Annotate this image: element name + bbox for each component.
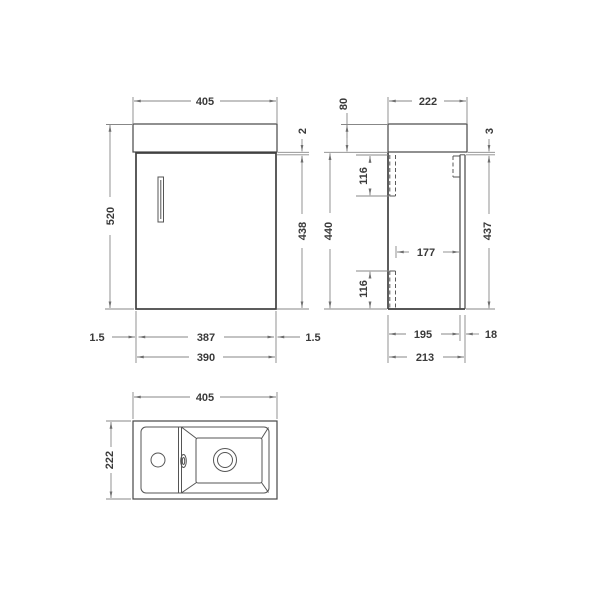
dim-side-top-gap: 3 [484,128,496,152]
dim-front-overall-height: 520 [105,125,117,308]
dim-side-total-depth-label: 213 [416,352,434,364]
dim-front-door-width-label: 387 [197,332,215,344]
dim-front-door-row: 1.5 387 1.5 [89,332,320,344]
dim-side-cabinet-depth-label: 195 [414,329,432,341]
plan-drain-outer [214,449,237,472]
dim-side-door-height: 437 [482,156,494,308]
side-wall-bracket-top [390,155,396,196]
dim-side-bracket-top-label: 116 [358,167,370,185]
plan-bowl-chamfer-tl [182,428,197,439]
plan-overflow-inner [182,458,184,465]
plan-bowl-chamfer-br [262,483,269,493]
technical-drawing-page: 405 520 2 438 1.5 387 1.5 [0,0,600,600]
plan-bowl-chamfer-tr [262,428,269,439]
plan-bowl-chamfer-bl [182,483,197,493]
plan-worktop-outline [133,421,277,499]
dim-front-worktop-overhang: 2 [297,128,309,152]
dim-front-worktop-overhang-label: 2 [297,128,309,134]
dim-front-overall-height-label: 520 [105,207,117,225]
side-basin-outline [388,124,467,152]
dim-front-overall-width: 405 [134,96,276,108]
dim-front-door-gap-right-label: 1.5 [305,332,320,344]
side-extension-lines [324,97,495,363]
dim-side-bracket-bottom: 116 [358,272,370,308]
side-view: 222 80 3 116 440 177 [323,96,497,364]
dim-side-basin-height-label: 80 [338,98,350,110]
plan-basin-bowl [182,428,269,493]
dim-front-cabinet-width: 390 [137,352,275,364]
dim-side-cabinet-height: 440 [323,153,335,308]
dim-front-door-gap-left-label: 1.5 [89,332,104,344]
dim-side-bracket-top: 116 [358,156,370,195]
plan-drain-inner [218,453,233,468]
front-basin-outline [133,124,277,152]
dim-side-internal-depth-label: 177 [417,247,435,259]
dim-side-top-gap-label: 3 [484,128,496,134]
dim-side-depth-row: 195 18 [389,329,497,341]
front-cabinet-door [136,153,276,309]
dim-side-door-height-label: 437 [482,222,494,240]
plan-bowl-inner-edge [196,438,262,483]
vanity-unit-technical-drawing: 405 520 2 438 1.5 387 1.5 [0,0,600,600]
dim-front-door-height-label: 438 [297,222,309,240]
dim-side-door-thickness-label: 18 [485,329,497,341]
dim-front-overall-width-label: 405 [196,96,214,108]
dim-plan-overall-depth-label: 222 [104,451,116,469]
dim-side-overall-depth: 222 [389,96,466,108]
dim-front-door-height: 438 [297,156,309,308]
dim-side-total-depth: 213 [389,352,464,364]
dim-side-bracket-bottom-label: 116 [358,280,370,298]
front-view: 405 520 2 438 1.5 387 1.5 [89,96,320,364]
dim-plan-overall-width: 405 [134,392,276,404]
dim-side-overall-depth-label: 222 [419,96,437,108]
plan-tap-hole [151,453,165,467]
side-hinge-plate [453,156,460,177]
side-wall-bracket-bottom [390,271,396,309]
dim-side-internal-depth: 177 [397,247,459,259]
dim-plan-overall-depth: 222 [104,422,116,498]
dim-side-cabinet-height-label: 440 [323,222,335,240]
dim-front-cabinet-width-label: 390 [197,352,215,364]
plan-view: 405 222 [104,392,277,499]
dim-plan-overall-width-label: 405 [196,392,214,404]
